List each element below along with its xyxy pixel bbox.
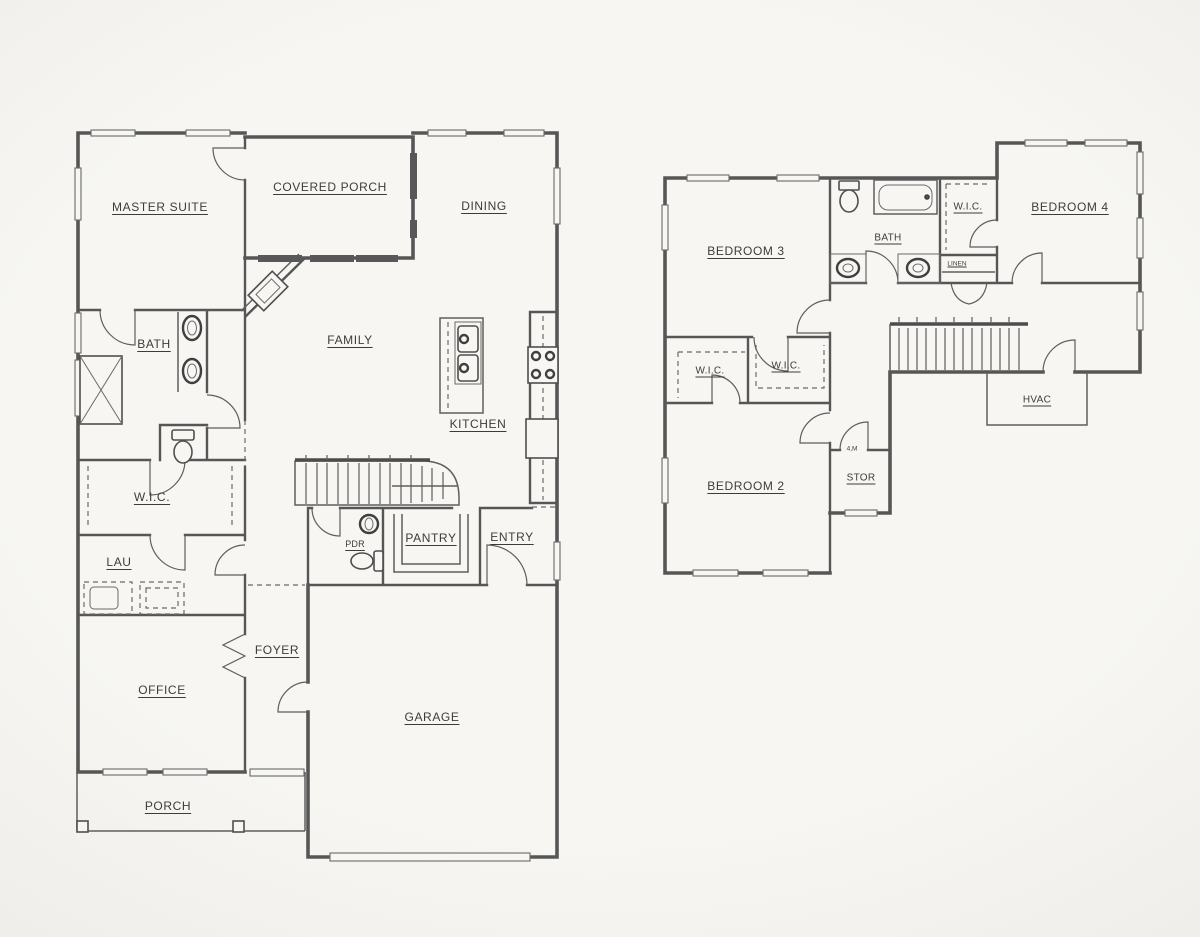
room-label-bedroom-3: BEDROOM 3 [707, 244, 784, 258]
room-label-covered-porch: COVERED PORCH [273, 180, 387, 194]
room-label-master-suite: MASTER SUITE [112, 200, 208, 214]
room-label-wic: W.I.C. [134, 490, 170, 504]
room-labels: MASTER SUITE COVERED PORCH DINING FAMILY… [0, 0, 1200, 937]
door-size-note: 4,M [847, 446, 858, 453]
room-label-hvac: HVAC [1023, 395, 1051, 406]
room-label-wic-left: W.I.C. [695, 366, 724, 377]
room-label-laundry: LAU [106, 555, 131, 569]
room-label-kitchen: KITCHEN [450, 417, 507, 431]
room-label-powder: PDR [345, 539, 365, 549]
room-label-wic-right: W.I.C. [771, 361, 800, 372]
floor-plan-sheet: MASTER SUITE COVERED PORCH DINING FAMILY… [0, 0, 1200, 937]
room-label-bath: BATH [137, 337, 171, 351]
room-label-bedroom-2: BEDROOM 2 [707, 479, 784, 493]
room-label-family: FAMILY [327, 333, 372, 347]
room-label-pantry: PANTRY [405, 531, 456, 545]
room-label-porch: PORCH [145, 799, 191, 813]
room-label-bath-2: BATH [874, 233, 901, 244]
room-label-storage: STOR [847, 473, 876, 484]
room-label-garage: GARAGE [405, 710, 460, 724]
room-label-linen: LINEN [947, 261, 966, 268]
room-label-dining: DINING [461, 199, 507, 213]
room-label-foyer: FOYER [255, 643, 299, 657]
room-label-wic-bedroom4: W.I.C. [953, 202, 982, 213]
room-label-bedroom-4: BEDROOM 4 [1031, 200, 1108, 214]
room-label-entry: ENTRY [490, 530, 533, 544]
room-label-office: OFFICE [138, 683, 186, 697]
